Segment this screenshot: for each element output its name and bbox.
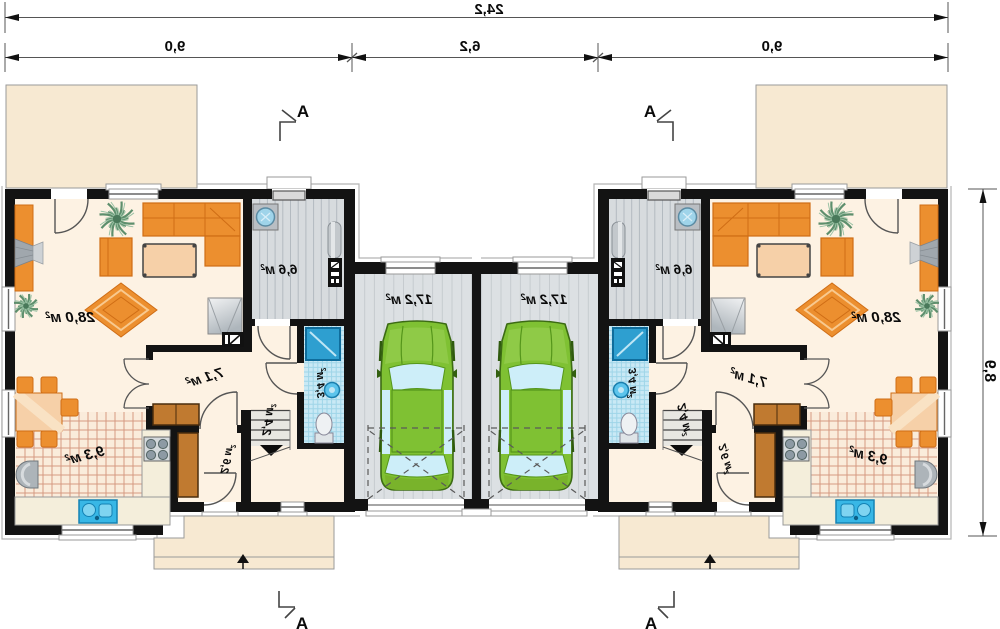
svg-text:3,4 м2: 3,4 м2 [627,368,639,399]
svg-text:8,9: 8,9 [981,360,998,382]
svg-text:3,4 м2: 3,4 м2 [314,368,326,399]
svg-text:24,2: 24,2 [474,1,503,18]
svg-text:28,0 м2: 28,0 м2 [851,309,901,326]
svg-text:9,0: 9,0 [762,38,783,55]
svg-text:A: A [644,102,656,121]
svg-text:6,6 м2: 6,6 м2 [655,262,693,277]
svg-text:6,2: 6,2 [460,38,481,55]
svg-text:A: A [645,614,657,629]
svg-text:17,2 м2: 17,2 м2 [386,291,433,307]
svg-text:A: A [296,614,308,629]
svg-text:9,0: 9,0 [165,38,186,55]
svg-text:17,2 м2: 17,2 м2 [521,291,568,307]
svg-text:28,0 м2: 28,0 м2 [45,309,95,326]
svg-text:A: A [297,102,309,121]
svg-text:6,6 м2: 6,6 м2 [260,262,298,277]
